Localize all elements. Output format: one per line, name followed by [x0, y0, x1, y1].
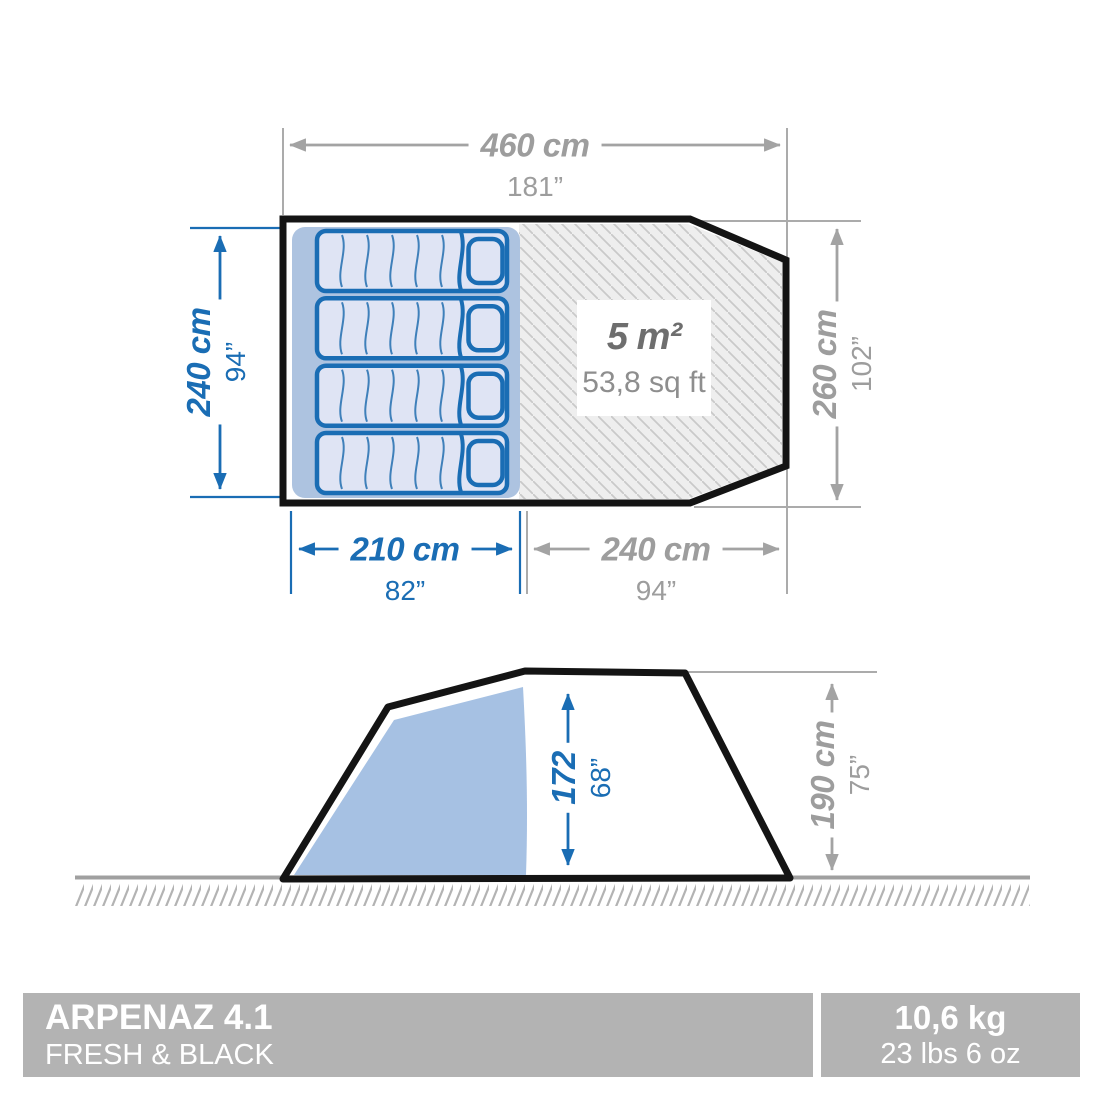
exterior-height-cm-label: 190 cm [806, 721, 839, 830]
weight-imperial: 23 lbs 6 oz [880, 1040, 1020, 1069]
sleeping-pad [317, 231, 507, 291]
product-line: FRESH & BLACK [45, 1041, 813, 1070]
total-width-in-label: 181” [507, 173, 563, 201]
exterior-height-in-label: 75” [846, 721, 874, 830]
living-area-label-box: 5 m² 53,8 sq ft [577, 300, 711, 416]
bedroom-depth-cm-label: 240 cm [182, 308, 215, 417]
bedroom-depth-in-label: 94” [222, 308, 250, 417]
total-depth-label: 260 cm 102” [804, 302, 880, 427]
weight-kg: 10,6 kg [895, 1001, 1007, 1034]
bedroom-depth-label: 240 cm 94” [178, 300, 254, 425]
living-area-sqft-label: 53,8 sq ft [582, 368, 705, 398]
diagram-graphics [0, 0, 1100, 1100]
sleeping-pad [317, 298, 507, 358]
interior-height-cm-label: 172 [547, 751, 580, 805]
total-depth-in-label: 102” [848, 310, 876, 419]
ground-hatch [75, 880, 1030, 906]
tent-side-view [283, 671, 790, 879]
weight-badge: 10,6 kg 23 lbs 6 oz [821, 993, 1080, 1077]
bedroom-width-in-label: 82” [385, 577, 425, 605]
sleeping-pad [317, 433, 507, 493]
total-depth-cm-label: 260 cm [808, 310, 841, 419]
interior-height-label: 172 68” [543, 743, 619, 813]
product-badge: ARPENAZ 4.1 FRESH & BLACK [23, 993, 813, 1077]
sleeping-pad [317, 366, 507, 426]
living-width-in-label: 94” [636, 577, 676, 605]
total-width-cm-label: 460 cm [469, 127, 602, 164]
living-area-m2-label: 5 m² [607, 318, 681, 356]
tent-spec-diagram: 460 cm 181” 240 cm 94” 260 cm 102” 5 m² … [0, 0, 1100, 1100]
product-name: ARPENAZ 4.1 [45, 1000, 813, 1035]
bedroom-width-cm-label: 210 cm [339, 531, 472, 568]
interior-height-in-label: 68” [587, 751, 615, 805]
living-width-cm-label: 240 cm [590, 531, 723, 568]
exterior-height-label: 190 cm 75” [802, 713, 878, 838]
